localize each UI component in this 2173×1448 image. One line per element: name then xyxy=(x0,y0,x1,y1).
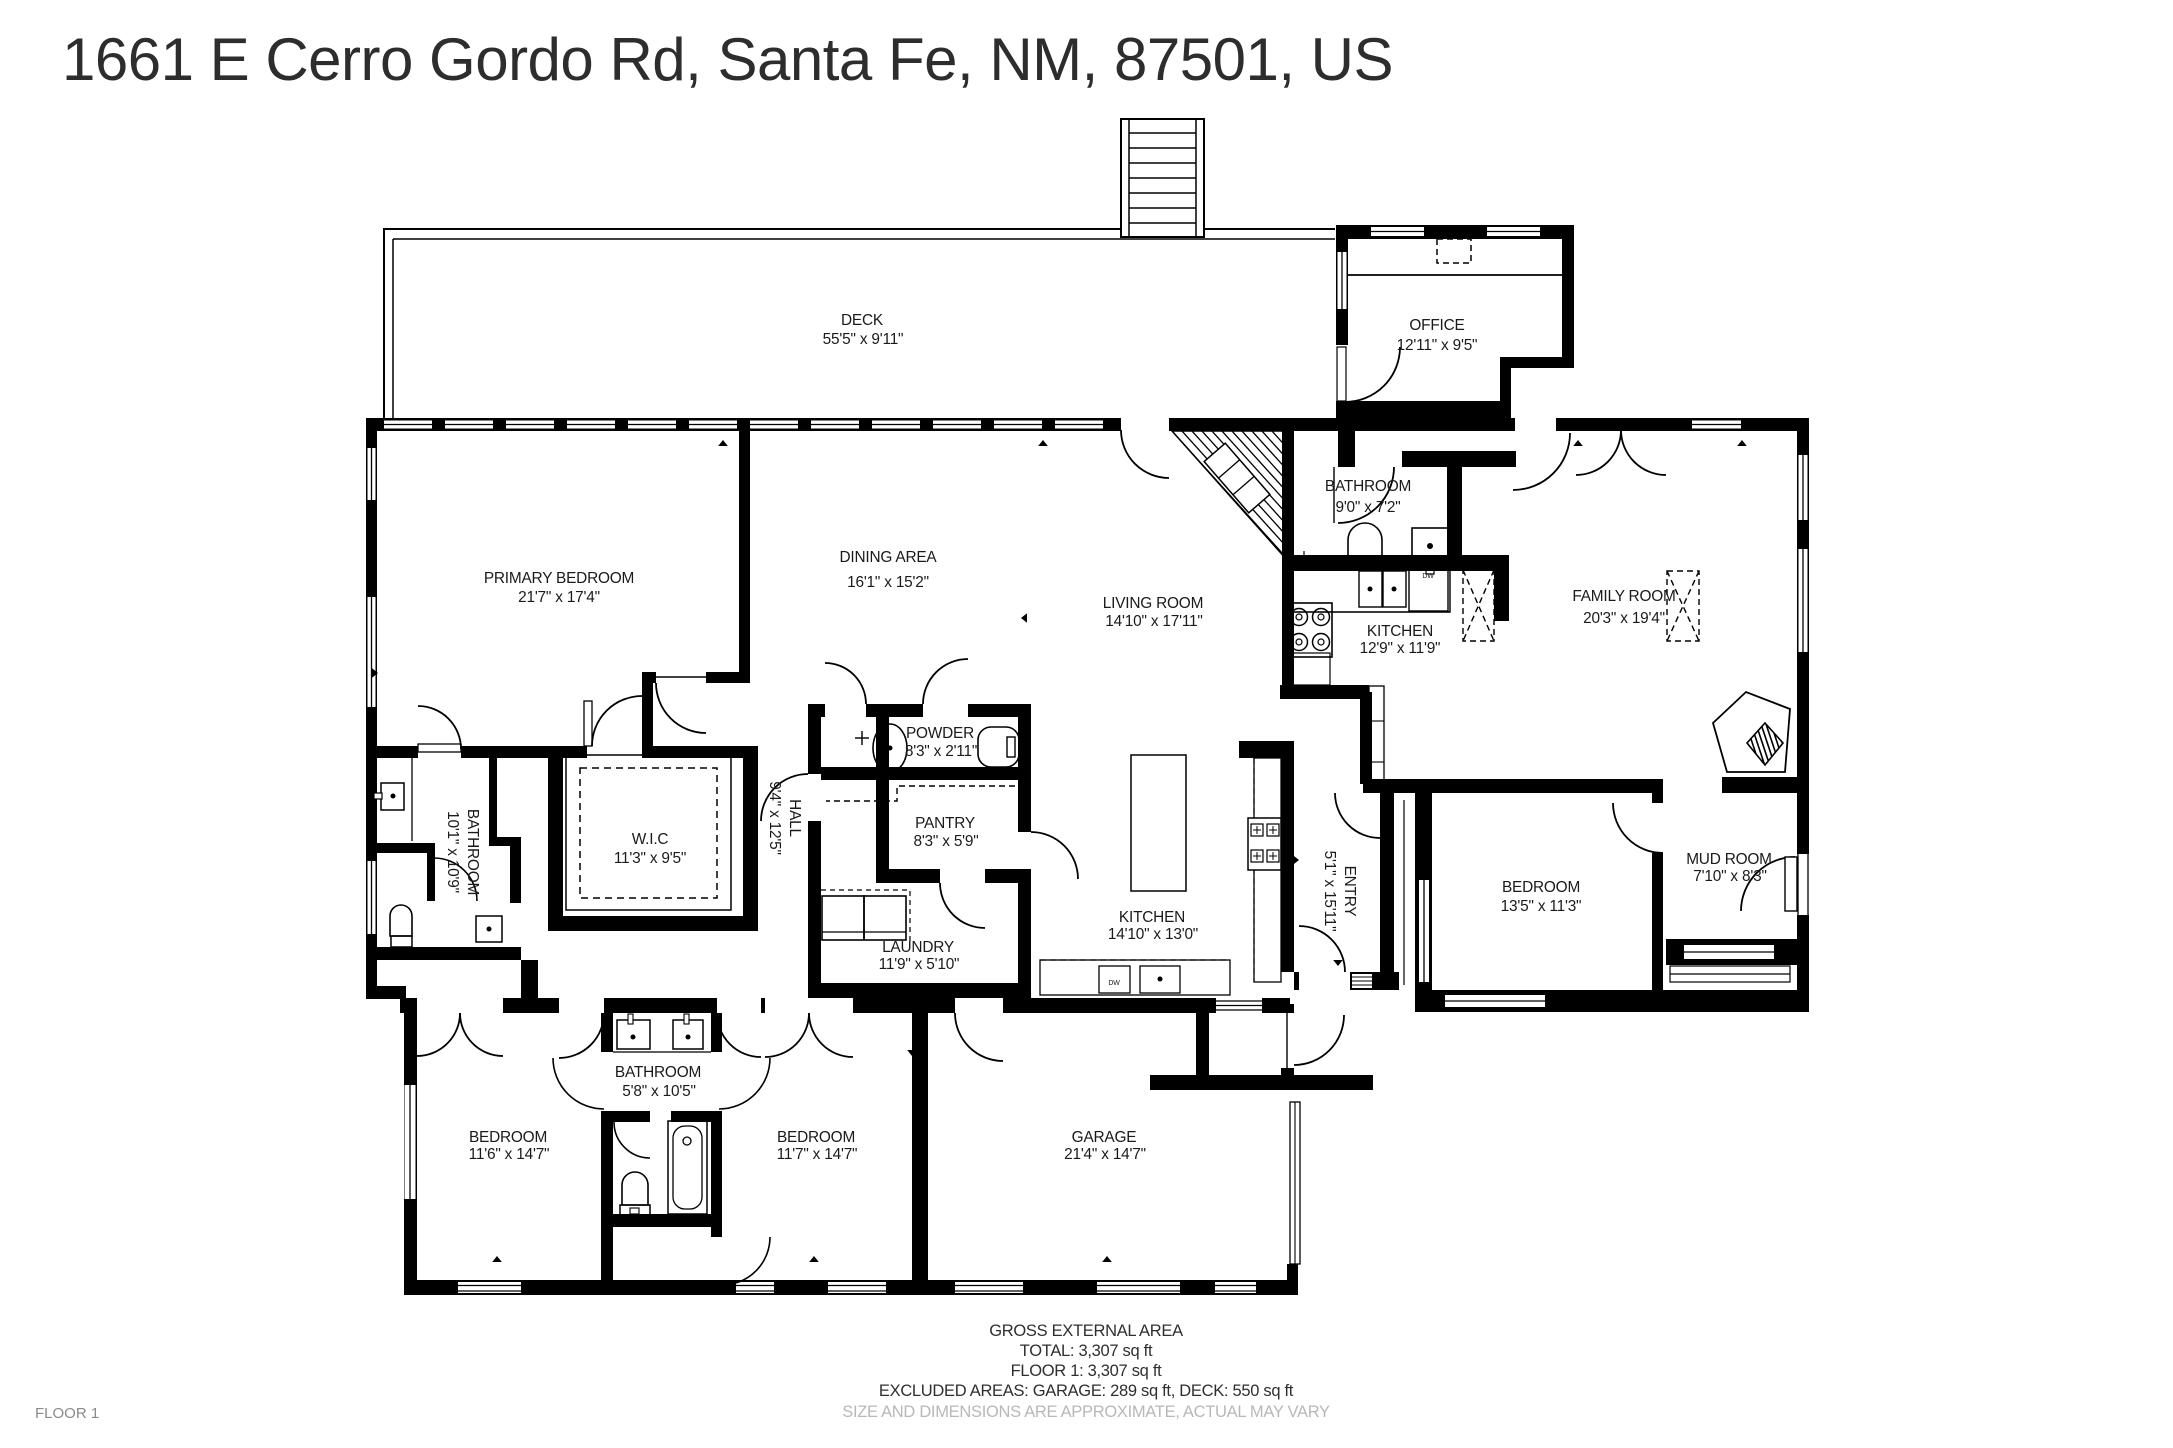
svg-text:LAUNDRY: LAUNDRY xyxy=(882,939,954,956)
svg-text:PRIMARY BEDROOM: PRIMARY BEDROOM xyxy=(484,570,634,587)
svg-text:FAMILY ROOM: FAMILY ROOM xyxy=(1572,588,1675,605)
svg-text:5'1" x 15'11": 5'1" x 15'11" xyxy=(1321,851,1338,932)
svg-text:8'3" x 2'11": 8'3" x 2'11" xyxy=(905,743,977,760)
svg-text:BATHROOM: BATHROOM xyxy=(1325,478,1411,495)
svg-text:PANTRY: PANTRY xyxy=(915,815,975,832)
svg-text:12'11" x 9'5": 12'11" x 9'5" xyxy=(1397,337,1478,354)
svg-text:SIZE AND DIMENSIONS ARE APPROX: SIZE AND DIMENSIONS ARE APPROXIMATE, ACT… xyxy=(842,1403,1330,1421)
svg-text:BATHROOM: BATHROOM xyxy=(615,1064,701,1081)
svg-text:GARAGE: GARAGE xyxy=(1072,1129,1137,1146)
svg-text:DW: DW xyxy=(1108,980,1120,987)
svg-text:12'9" x 11'9": 12'9" x 11'9" xyxy=(1360,640,1441,657)
svg-text:BEDROOM: BEDROOM xyxy=(469,1129,547,1146)
svg-text:ENTRY: ENTRY xyxy=(1341,866,1358,917)
svg-text:14'10" x 17'11": 14'10" x 17'11" xyxy=(1105,613,1202,630)
svg-text:GROSS EXTERNAL AREA: GROSS EXTERNAL AREA xyxy=(989,1322,1183,1340)
svg-text:DW: DW xyxy=(1422,573,1434,580)
svg-text:FLOOR 1: FLOOR 1 xyxy=(35,1405,99,1422)
svg-text:BEDROOM: BEDROOM xyxy=(777,1129,855,1146)
svg-text:9'0" x 7'2": 9'0" x 7'2" xyxy=(1335,499,1400,516)
svg-text:21'7" x 17'4": 21'7" x 17'4" xyxy=(518,589,600,606)
svg-text:MUD ROOM: MUD ROOM xyxy=(1686,851,1772,868)
svg-text:55'5" x 9'11": 55'5" x 9'11" xyxy=(823,331,904,348)
svg-text:OFFICE: OFFICE xyxy=(1409,317,1464,334)
svg-text:TOTAL: 3,307 sq ft: TOTAL: 3,307 sq ft xyxy=(1020,1342,1153,1360)
svg-text:14'10" x 13'0": 14'10" x 13'0" xyxy=(1108,926,1198,943)
svg-text:EXCLUDED AREAS: GARAGE: 289 sq: EXCLUDED AREAS: GARAGE: 289 sq ft, DECK:… xyxy=(879,1382,1294,1400)
svg-text:5'8" x 10'5": 5'8" x 10'5" xyxy=(622,1083,695,1100)
svg-text:7'10" x 8'3": 7'10" x 8'3" xyxy=(1693,868,1766,885)
svg-text:21'4" x 14'7": 21'4" x 14'7" xyxy=(1064,1146,1146,1163)
svg-text:POWDER: POWDER xyxy=(906,725,974,742)
svg-text:11'6" x 14'7": 11'6" x 14'7" xyxy=(469,1146,550,1163)
svg-text:LIVING ROOM: LIVING ROOM xyxy=(1103,595,1203,612)
svg-text:8'3" x 5'9": 8'3" x 5'9" xyxy=(913,833,978,850)
svg-text:KITCHEN: KITCHEN xyxy=(1367,623,1433,640)
svg-text:20'3" x 19'4": 20'3" x 19'4" xyxy=(1583,610,1665,627)
svg-text:FLOOR 1: 3,307 sq ft: FLOOR 1: 3,307 sq ft xyxy=(1011,1362,1163,1380)
svg-text:HALL: HALL xyxy=(786,799,803,837)
svg-text:KITCHEN: KITCHEN xyxy=(1119,909,1185,926)
svg-text:10'1" x 10'9": 10'1" x 10'9" xyxy=(444,811,461,893)
svg-text:11'7" x 14'7": 11'7" x 14'7" xyxy=(777,1146,858,1163)
svg-text:BATHROOM: BATHROOM xyxy=(464,809,481,895)
svg-text:1661 E Cerro Gordo Rd, Santa F: 1661 E Cerro Gordo Rd, Santa Fe, NM, 875… xyxy=(62,26,1393,93)
svg-text:13'5" x 11'3": 13'5" x 11'3" xyxy=(1501,898,1582,915)
svg-text:11'9" x 5'10": 11'9" x 5'10" xyxy=(879,956,960,973)
svg-text:9'4" x 12'5": 9'4" x 12'5" xyxy=(766,781,783,854)
svg-text:BEDROOM: BEDROOM xyxy=(1502,879,1580,896)
svg-text:W.I.C: W.I.C xyxy=(632,831,669,848)
svg-text:16'1" x 15'2": 16'1" x 15'2" xyxy=(847,574,929,591)
svg-text:DINING AREA: DINING AREA xyxy=(839,549,937,566)
svg-text:11'3" x 9'5": 11'3" x 9'5" xyxy=(614,850,686,867)
svg-text:DECK: DECK xyxy=(841,312,884,329)
